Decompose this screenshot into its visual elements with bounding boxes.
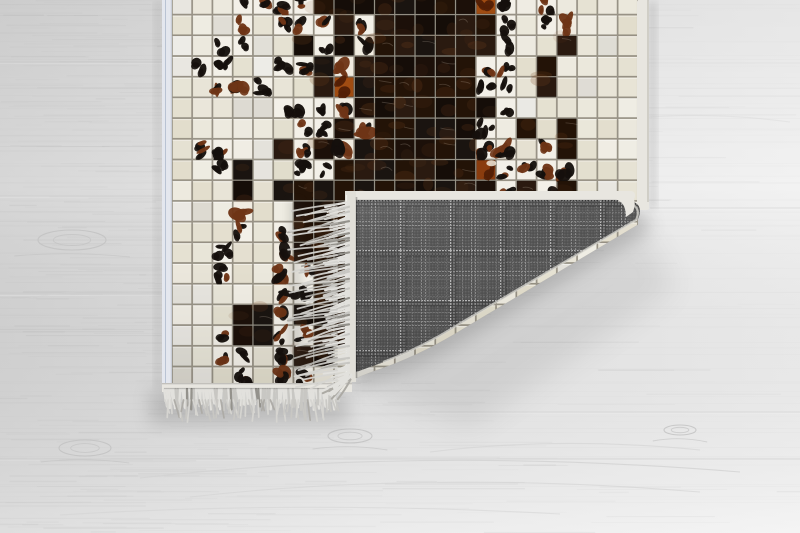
- rug-product-photo: [0, 0, 800, 533]
- rug-left-binding: [162, 0, 172, 392]
- rug-scene-svg: [0, 0, 800, 533]
- fold-top-binding: [345, 191, 635, 200]
- rug-right-binding: [637, 0, 649, 210]
